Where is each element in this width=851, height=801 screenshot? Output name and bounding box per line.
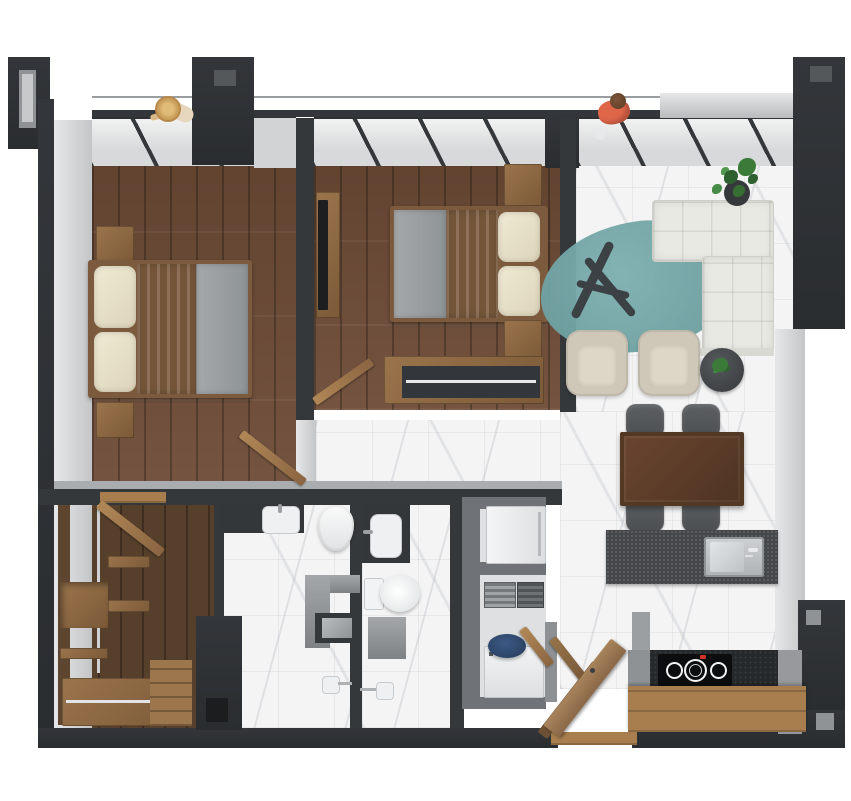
bedroom2-pillow-2 — [498, 266, 540, 316]
bedroom2-nightstand-bottom — [504, 320, 542, 360]
closet-threshold — [100, 492, 166, 503]
bathroom1-niche-inner — [322, 618, 352, 638]
cooktop-burner-left — [666, 662, 683, 679]
closet-step-drawers — [150, 660, 192, 726]
utility-frame-left — [462, 497, 480, 707]
living-armchair-1 — [566, 330, 628, 396]
wall-east-kitchen-notch2 — [816, 713, 834, 730]
bathroom2-toilet-bowl — [380, 574, 420, 612]
closet-mid-shelf-2 — [108, 600, 150, 612]
island-sink-faucet — [748, 548, 758, 552]
cooktop-indicator — [700, 655, 706, 659]
cooktop-burner-center — [684, 659, 707, 682]
utility-fridge-handle — [538, 512, 541, 556]
closet-mid-shelf-1 — [108, 556, 150, 568]
bedroom1-mattress — [196, 264, 248, 394]
bedroom1-pillow-1 — [94, 266, 136, 328]
island-sink-basin — [710, 542, 744, 572]
living-sofa-top — [652, 200, 774, 262]
wall-box-top-right-notch — [810, 66, 832, 82]
duct-block-notch — [206, 698, 228, 722]
closet-shelf-plank — [60, 648, 108, 659]
closet-shelf-box — [60, 582, 108, 628]
corner-plant-pot — [724, 180, 750, 206]
bedroom1-nightstand-top — [96, 226, 134, 264]
wall-east-kitchen-notch1 — [806, 610, 821, 625]
person-left-straw-hat — [155, 96, 181, 122]
dining-table — [620, 432, 744, 506]
column-bedroom1-notch — [214, 70, 236, 86]
cooktop-burner-right — [710, 662, 727, 679]
kitchen-counter-gray-left — [628, 650, 650, 688]
bedroom1-pillow-2 — [94, 332, 136, 392]
bedroom1-blanket — [137, 264, 197, 394]
bathroom1-shower-head — [322, 676, 340, 694]
floor-lobby — [316, 420, 560, 489]
bedroom2-mattress — [394, 210, 446, 318]
bathroom2-sink — [370, 514, 402, 558]
bathroom2-shower-head — [376, 682, 394, 700]
bathroom1-sink-faucet — [278, 504, 282, 513]
utility-vent-2 — [517, 582, 544, 608]
wall-face-northeast — [660, 93, 793, 118]
bathroom2-sink-faucet — [363, 530, 373, 534]
bedroom2-tv — [318, 200, 328, 310]
bedroom2-dresser-shelf-glint — [406, 380, 536, 383]
living-armchair-2 — [638, 330, 700, 396]
window-box-recess-glass — [22, 74, 33, 122]
bedroom1-nightstand-bottom — [96, 402, 134, 438]
bathroom2-shower-pipe — [360, 688, 376, 691]
utility-fridge — [486, 506, 546, 564]
utility-frame-bottom — [462, 697, 546, 709]
bathroom2-partition — [368, 617, 406, 659]
armchair-seat — [577, 345, 617, 387]
wall-south — [38, 728, 558, 748]
armchair-seat — [649, 345, 689, 387]
person-right-head — [610, 93, 626, 109]
utility-vent-1 — [484, 582, 516, 608]
living-sofa-right — [702, 256, 774, 352]
floor-plan-render — [0, 0, 851, 801]
bedroom2-nightstand-top — [504, 164, 542, 206]
entry-door-handle — [590, 668, 595, 673]
bedroom2-pillow-1 — [498, 212, 540, 262]
wall-box-top-right — [793, 57, 845, 329]
entry-threshold — [551, 732, 637, 745]
bathroom1-shower-pipe — [338, 682, 352, 685]
wall-divider-bed1-bed2 — [296, 118, 314, 420]
bedroom2-blanket — [446, 210, 498, 318]
wall-west — [38, 99, 54, 748]
kitchen-wood-counter — [628, 686, 806, 732]
wall-face-bedroom1-window-pier — [254, 118, 296, 168]
washer-basket — [488, 634, 526, 658]
